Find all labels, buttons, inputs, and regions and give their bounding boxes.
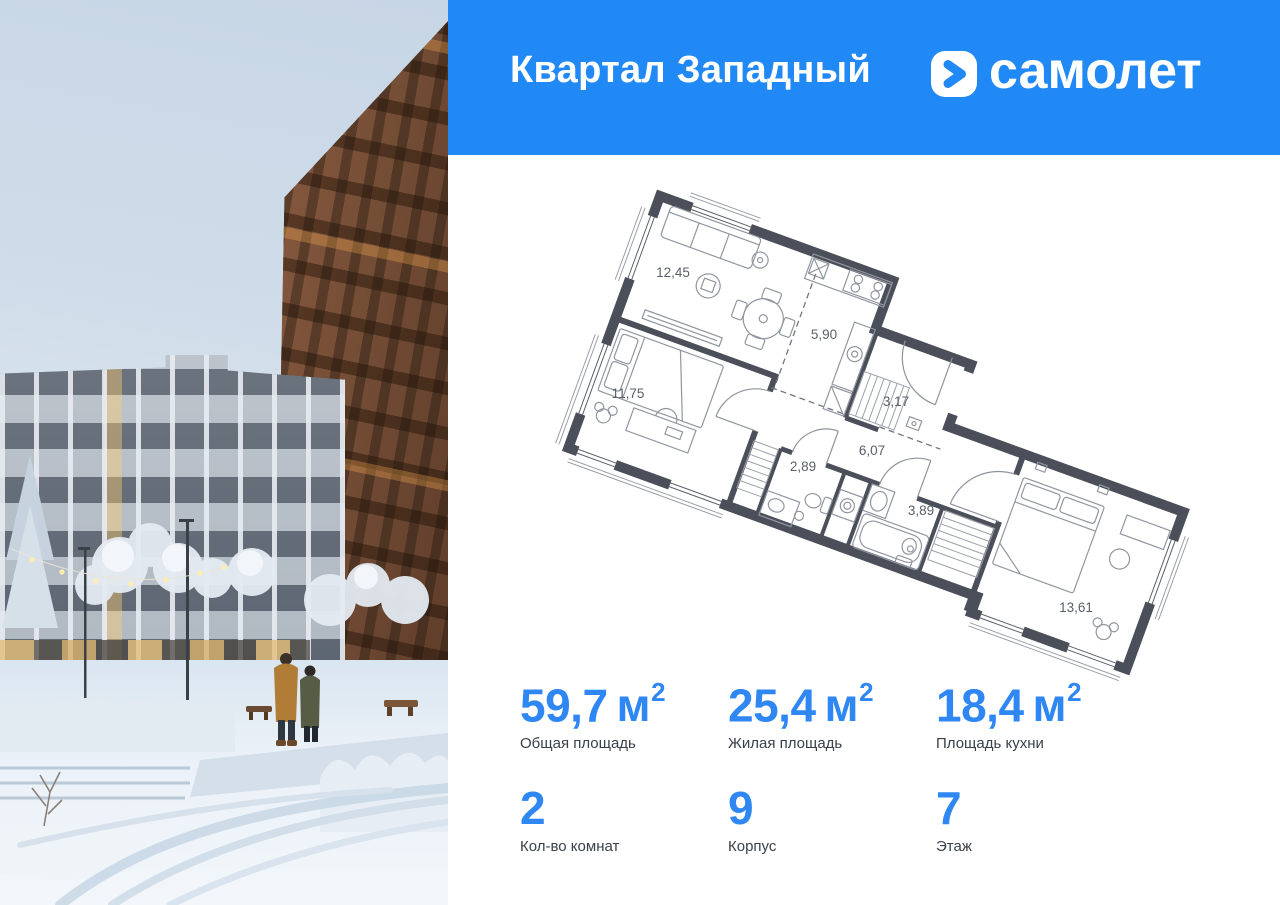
stat-value: 2 bbox=[520, 782, 725, 834]
stat-value: 7 bbox=[936, 782, 1141, 834]
stat-label: Общая площадь bbox=[520, 734, 725, 754]
stat-label: Кол-во комнат bbox=[520, 837, 725, 857]
stat-kitchen-area: 18,4м2 Площадь кухни bbox=[936, 670, 1141, 754]
floor-plan: 12,45 5,90 11,75 3,17 6,07 2,89 3,89 13,… bbox=[0, 0, 1280, 905]
stat-label: Площадь кухни bbox=[936, 734, 1141, 754]
stat-value: 59,7м2 bbox=[520, 670, 725, 731]
stat-value: 18,4м2 bbox=[936, 670, 1141, 731]
room-area-label: 12,45 bbox=[656, 265, 690, 280]
stat-label: Жилая площадь bbox=[728, 734, 933, 754]
stat-label: Этаж bbox=[936, 837, 1141, 857]
room-area-label: 13,61 bbox=[1059, 600, 1093, 615]
stat-value: 25,4м2 bbox=[728, 670, 933, 731]
stat-rooms-count: 2 Кол-во комнат bbox=[520, 782, 725, 857]
room-area-label: 3,17 bbox=[883, 394, 909, 409]
stat-building-number: 9 Корпус bbox=[728, 782, 933, 857]
room-area-label: 6,07 bbox=[859, 443, 885, 458]
room-area-label: 2,89 bbox=[790, 459, 816, 474]
stat-living-area: 25,4м2 Жилая площадь bbox=[728, 670, 933, 754]
promo-card: Квартал Западный самолет bbox=[0, 0, 1280, 905]
room-area-label: 5,90 bbox=[811, 327, 837, 342]
stat-floor-number: 7 Этаж bbox=[936, 782, 1141, 857]
stat-total-area: 59,7м2 Общая площадь bbox=[520, 670, 725, 754]
stat-label: Корпус bbox=[728, 837, 933, 857]
room-area-label: 3,89 bbox=[908, 503, 934, 518]
room-area-label: 11,75 bbox=[612, 386, 645, 401]
stat-value: 9 bbox=[728, 782, 933, 834]
